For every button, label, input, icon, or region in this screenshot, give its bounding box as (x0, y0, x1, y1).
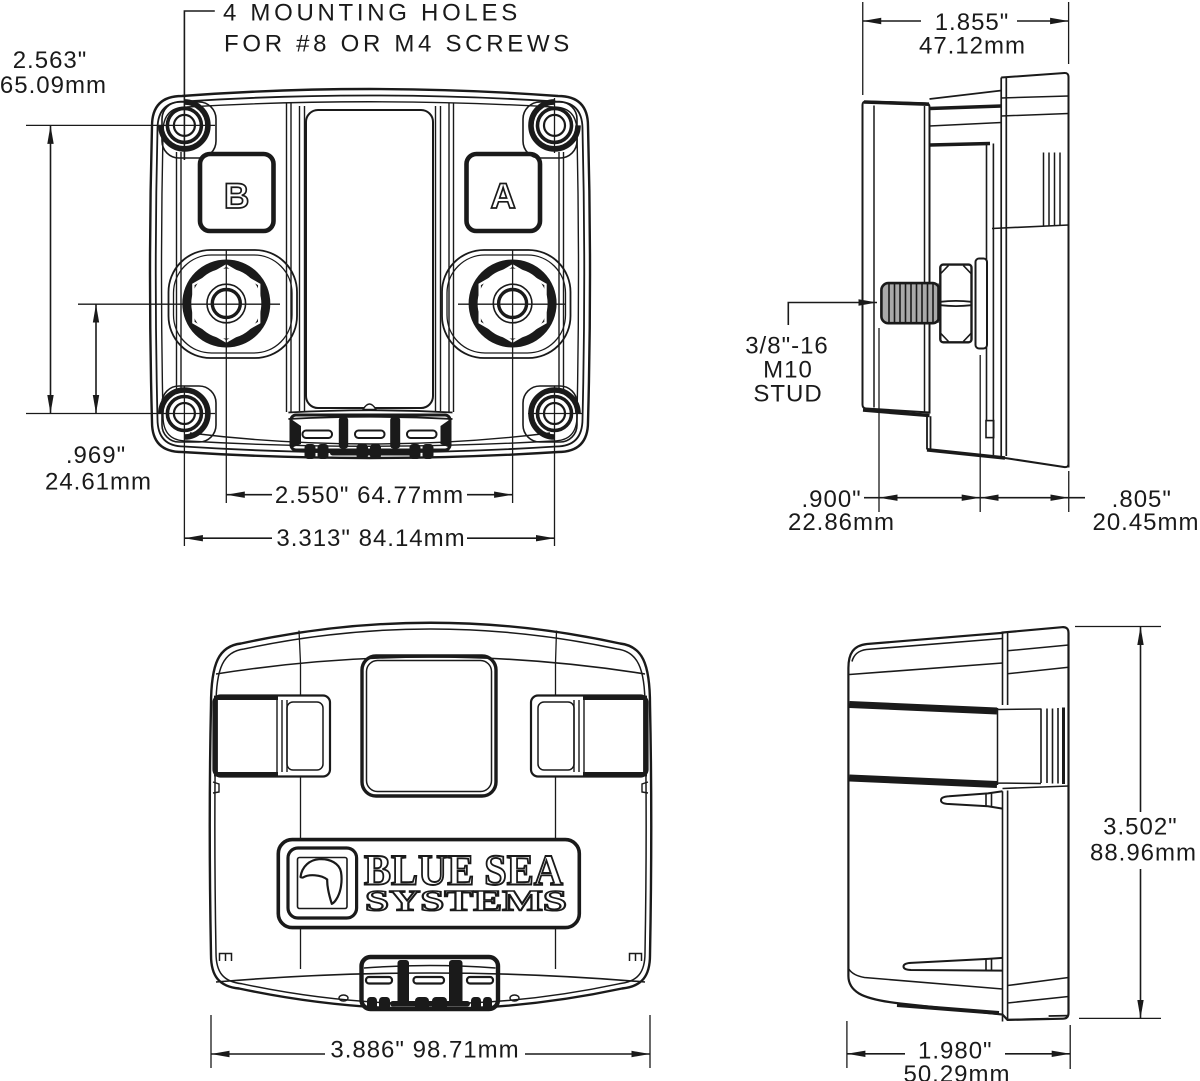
svg-text:47.12mm: 47.12mm (919, 33, 1026, 60)
svg-text:20.45mm: 20.45mm (1092, 509, 1199, 536)
svg-text:88.96mm: 88.96mm (1090, 840, 1197, 867)
svg-text:3.313" 84.14mm: 3.313" 84.14mm (276, 525, 465, 552)
svg-text:A: A (491, 177, 516, 216)
svg-text:50.29mm: 50.29mm (903, 1061, 1010, 1081)
svg-text:22.86mm: 22.86mm (788, 509, 895, 536)
svg-text:3/8"-16: 3/8"-16 (745, 333, 829, 360)
svg-text:.969": .969" (66, 442, 126, 469)
svg-text:2.550" 64.77mm: 2.550" 64.77mm (275, 482, 464, 509)
svg-text:SYSTEMS: SYSTEMS (365, 885, 567, 918)
svg-text:FOR #8 OR M4 SCREWS: FOR #8 OR M4 SCREWS (224, 31, 573, 58)
svg-text:65.09mm: 65.09mm (0, 72, 107, 99)
svg-text:24.61mm: 24.61mm (45, 469, 152, 496)
svg-text:3.502": 3.502" (1103, 814, 1178, 841)
svg-text:M10: M10 (763, 357, 813, 384)
svg-text:B: B (224, 177, 249, 216)
svg-text:STUD: STUD (753, 381, 822, 408)
svg-text:2.563": 2.563" (13, 47, 88, 74)
svg-text:3.886" 98.71mm: 3.886" 98.71mm (330, 1037, 519, 1064)
svg-text:4 MOUNTING HOLES: 4 MOUNTING HOLES (223, 0, 521, 27)
